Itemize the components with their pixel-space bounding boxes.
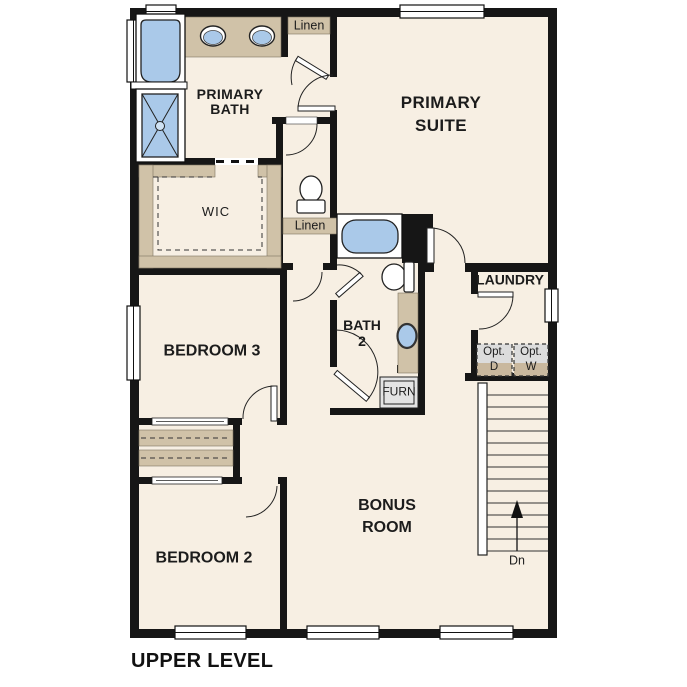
wall-segment <box>139 477 152 484</box>
wall-segment <box>330 17 337 77</box>
stair-rail <box>478 383 487 555</box>
wall-segment <box>330 110 337 263</box>
stairs-down-label: Dn <box>509 554 525 568</box>
wic-shelf <box>267 165 281 268</box>
wall-segment <box>317 117 330 124</box>
bedroom2-label: BEDROOM 2 <box>156 549 253 566</box>
laundry-label: LAUNDRY <box>476 272 544 287</box>
bathtub <box>342 220 398 253</box>
primary-bath-label: PRIMARY BATH <box>197 87 264 117</box>
door-leaf <box>271 386 277 421</box>
tub-deck <box>131 82 187 89</box>
wall-segment <box>418 257 425 415</box>
toilet <box>382 264 406 290</box>
wall-segment <box>277 418 287 425</box>
wall-segment <box>258 158 281 165</box>
door-leaf <box>298 106 335 111</box>
wall-segment <box>281 17 288 57</box>
bonus-room-label: BONUS ROOM <box>358 495 416 539</box>
primary-suite-label: PRIMARY SUITE <box>401 91 482 137</box>
linen-lower-label: Linen <box>295 219 326 233</box>
wall-segment <box>233 418 240 484</box>
wall-segment <box>280 270 287 418</box>
wic-label: WIC <box>202 205 230 219</box>
furnace-label: FURN <box>382 386 415 399</box>
bath2-label: BATH 2 <box>343 317 381 349</box>
wall-segment <box>280 484 287 629</box>
sink-basin <box>253 31 272 45</box>
sink-basin <box>398 324 417 348</box>
wall-segment <box>330 408 425 415</box>
bathtub <box>141 20 180 82</box>
wic-shelf <box>139 165 153 268</box>
wall-segment <box>423 263 434 272</box>
wall-segment <box>278 477 287 484</box>
wall-segment <box>139 268 281 275</box>
optional-washer-label: Opt. W <box>520 345 542 375</box>
linen-upper-label: Linen <box>294 19 325 33</box>
floor-plan: PRIMARY BATH PRIMARY SUITE WIC Linen Lin… <box>0 0 687 687</box>
door-leaf <box>427 228 434 263</box>
door-leaf <box>478 292 513 297</box>
toilet-tank <box>404 262 414 292</box>
cased-opening <box>286 117 317 124</box>
wall-segment <box>222 477 242 484</box>
wall-segment <box>548 8 557 638</box>
toilet <box>300 176 322 202</box>
sink-basin <box>204 31 223 45</box>
toilet-tank <box>297 200 325 213</box>
shower-drain <box>156 122 165 131</box>
wic-shelf <box>139 256 281 268</box>
wall-segment <box>330 300 337 367</box>
wall-segment <box>281 263 293 270</box>
wall-segment <box>139 418 152 425</box>
plan-title: UPPER LEVEL <box>131 650 273 673</box>
optional-dryer-label: Opt. D <box>483 345 505 375</box>
bedroom3-label: BEDROOM 3 <box>164 342 261 359</box>
wall-segment <box>323 263 337 270</box>
wall-segment <box>130 8 557 17</box>
